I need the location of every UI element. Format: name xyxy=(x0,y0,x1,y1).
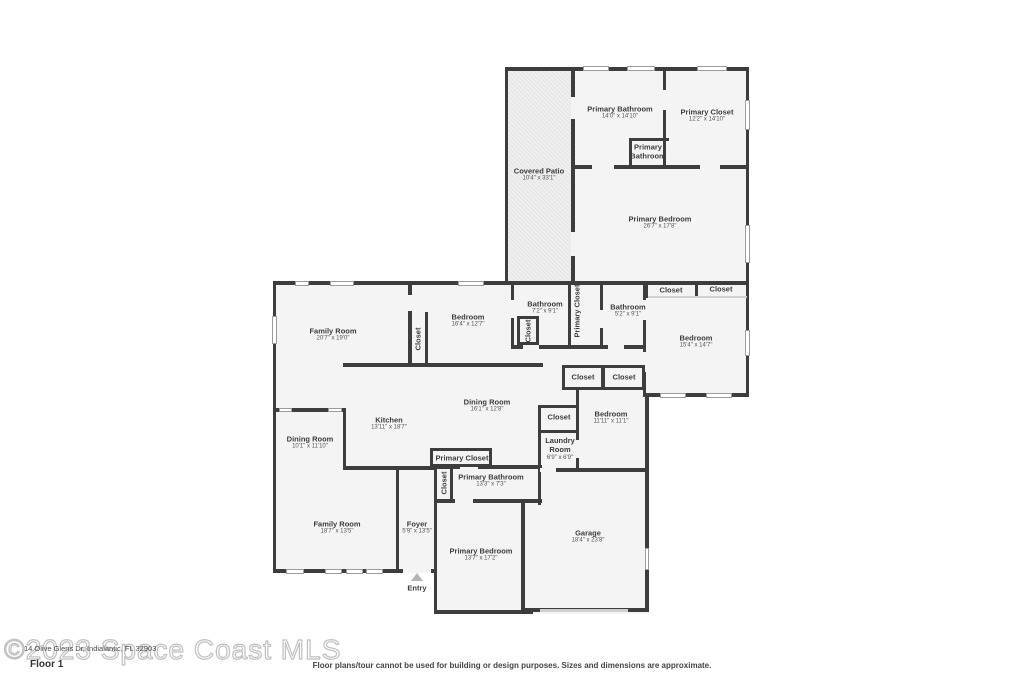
room-dimensions: 12'2" x 14'10" xyxy=(681,117,734,125)
room-floor xyxy=(273,397,436,572)
room-name: Dining Room xyxy=(287,435,334,444)
room-label-entry: Entry xyxy=(407,583,426,592)
window xyxy=(706,393,732,398)
window xyxy=(645,548,649,570)
window xyxy=(279,408,292,412)
room-dimensions: 13'7" x 17'2" xyxy=(450,556,513,564)
door-opening xyxy=(700,165,720,169)
entry-direction-icon xyxy=(411,573,423,581)
room-label-primary-closet-lower: Primary Closet xyxy=(436,453,489,462)
room-name: Bathroom xyxy=(527,300,562,309)
room-dimensions: 5'2" x 9'1" xyxy=(610,312,645,320)
room-name: Closet xyxy=(572,372,595,381)
floor-plan-page: Primary Bathroom14'0" x 14'10"Primary Cl… xyxy=(0,0,1024,683)
room-dimensions: 10'1" x 11'10" xyxy=(287,444,334,452)
door-opening xyxy=(592,165,614,169)
wall xyxy=(568,281,571,347)
room-dimensions: 6'9" x 6'9" xyxy=(540,455,580,463)
room-name: Closet xyxy=(613,372,636,381)
room-label-garage: Garage18'4" x 23'8" xyxy=(572,529,605,546)
room-name: Kitchen xyxy=(371,416,407,425)
room-name: Closet xyxy=(439,472,448,495)
room-label-primary-bathroom-lower: Primary Bathroom13'3" x 7'3" xyxy=(458,473,523,490)
room-label-bathroom-hall: Bathroom7'2" x 9'1" xyxy=(527,300,562,317)
door-opening xyxy=(540,468,556,472)
room-name: Bedroom xyxy=(594,410,629,419)
room-dimensions: 13'3" x 7'3" xyxy=(458,482,523,490)
wall xyxy=(343,466,437,470)
room-label-primary-bedroom-upper: Primary Bedroom26'7" x 17'8" xyxy=(629,215,692,232)
room-dimensions: 26'7" x 17'8" xyxy=(629,224,692,232)
window xyxy=(330,281,354,286)
room-name: Covered Patio xyxy=(514,167,564,176)
room-label-closet-bathroom-hall: Closet xyxy=(523,320,532,343)
room-dimensions: 13'11" x 18'7" xyxy=(371,425,407,433)
address-watermark: 14 Olive Glens Dr, Indialantic, FL 32903 xyxy=(24,644,156,653)
door-opening xyxy=(455,499,473,503)
window xyxy=(366,569,383,574)
room-name: Entry xyxy=(407,583,426,592)
window xyxy=(346,569,363,574)
wall xyxy=(450,467,453,502)
room-name: Closet xyxy=(413,328,422,351)
door-opening xyxy=(608,345,624,349)
window xyxy=(697,66,727,71)
room-label-closet-foyer: Closet xyxy=(439,472,448,495)
room-label-covered-patio: Covered Patio10'4" x 33'1" xyxy=(514,167,564,184)
window xyxy=(745,330,750,356)
wall xyxy=(396,467,399,571)
room-dimensions: 16'1" x 12'8" xyxy=(464,407,511,415)
room-label-closet-right-b: Closet xyxy=(710,284,733,293)
disclaimer-text: Floor plans/tour cannot be used for buil… xyxy=(0,661,1024,670)
room-name: Primary Closet xyxy=(681,108,734,117)
room-label-primary-closet-upper: Primary Closet12'2" x 14'10" xyxy=(681,108,734,125)
room-label-bathroom-right: Bathroom5'2" x 9'1" xyxy=(610,303,645,320)
room-label-kitchen: Kitchen13'11" x 18'7" xyxy=(371,416,407,433)
room-dimensions: 7'2" x 9'1" xyxy=(527,309,562,317)
room-name: Bedroom xyxy=(680,334,713,343)
room-dimensions: 5'9" x 13'5" xyxy=(402,529,432,537)
shelf-line xyxy=(540,609,628,612)
wall xyxy=(408,281,412,367)
wall xyxy=(343,408,346,468)
door-opening xyxy=(571,97,575,119)
room-name: Primary Closet xyxy=(572,285,581,338)
room-label-primary-bathroom-small: Primary Bathroom xyxy=(625,143,671,162)
room-name: Primary Closet xyxy=(436,453,489,462)
wall xyxy=(434,499,437,614)
room-dimensions: 18'4" x 23'8" xyxy=(572,538,605,546)
room-dimensions: 14'0" x 14'10" xyxy=(587,114,652,122)
room-label-closet-bedroom-mid: Closet xyxy=(413,328,422,351)
wall xyxy=(521,502,525,612)
window xyxy=(745,100,750,130)
room-dimensions: 20'7" x 19'0" xyxy=(309,336,356,344)
door-opening xyxy=(571,232,575,256)
room-dimensions: 10'4" x 33'1" xyxy=(514,176,564,184)
window xyxy=(328,408,342,412)
wall xyxy=(505,67,508,285)
window xyxy=(458,281,484,286)
door-opening xyxy=(600,310,603,328)
room-label-closet-laundry: Closet xyxy=(548,412,571,421)
window xyxy=(583,66,609,71)
room-name: Primary Bedroom xyxy=(629,215,692,224)
door-opening xyxy=(663,90,666,110)
room-label-closet-mid-b: Closet xyxy=(613,372,636,381)
door-opening xyxy=(523,345,539,349)
window xyxy=(627,66,655,71)
room-label-closet-mid-a: Closet xyxy=(572,372,595,381)
window xyxy=(295,281,309,286)
door-opening xyxy=(511,300,514,318)
window xyxy=(745,225,750,263)
room-dimensions: 16'4" x 12'7" xyxy=(452,322,485,330)
room-name: Closet xyxy=(660,285,683,294)
room-name: Closet xyxy=(548,412,571,421)
window xyxy=(660,393,686,398)
room-label-family-room-lower: Family Room18'7" x 13'5" xyxy=(313,520,360,537)
room-dimensions: 18'7" x 13'5" xyxy=(313,529,360,537)
wall xyxy=(434,499,542,503)
wall xyxy=(645,393,649,612)
room-name: Primary Bathroom xyxy=(458,473,523,482)
room-name: Bedroom xyxy=(452,313,485,322)
room-name: Garage xyxy=(572,529,605,538)
room-label-dining-room-left: Dining Room10'1" x 11'10" xyxy=(287,435,334,452)
wall xyxy=(538,405,578,408)
door-opening xyxy=(408,295,412,311)
wall xyxy=(343,363,543,367)
room-name: Laundry Room xyxy=(540,436,580,455)
wall xyxy=(425,312,428,367)
room-label-closet-right-a: Closet xyxy=(660,285,683,294)
room-name: Bathroom xyxy=(610,303,645,312)
room-name: Primary Bathroom xyxy=(587,105,652,114)
room-label-laundry-room: Laundry Room6'9" x 6'9" xyxy=(540,436,580,462)
room-label-bedroom-right: Bedroom15'4" x 14'7" xyxy=(680,334,713,351)
room-name: Closet xyxy=(710,284,733,293)
room-label-family-room-upper: Family Room20'7" x 19'0" xyxy=(309,327,356,344)
room-dimensions: 11'11" x 11'1" xyxy=(594,419,629,427)
window xyxy=(325,569,342,574)
window xyxy=(272,316,277,344)
room-name: Dining Room xyxy=(464,398,511,407)
room-label-bedroom-center: Bedroom11'11" x 11'1" xyxy=(594,410,629,427)
room-label-bedroom-mid: Bedroom16'4" x 12'7" xyxy=(452,313,485,330)
window xyxy=(286,569,304,574)
room-label-dining-room-main: Dining Room16'1" x 12'8" xyxy=(464,398,511,415)
room-label-primary-closet-hall: Primary Closet xyxy=(572,285,581,338)
room-name: Primary Bedroom xyxy=(450,547,513,556)
shelf-line xyxy=(648,296,747,298)
room-label-foyer: Foyer5'9" x 13'5" xyxy=(402,520,432,537)
room-dimensions: 15'4" x 14'7" xyxy=(680,343,713,351)
room-name: Foyer xyxy=(402,520,432,529)
room-name: Primary Bathroom xyxy=(625,143,671,162)
wall xyxy=(434,610,533,614)
room-name: Family Room xyxy=(309,327,356,336)
wall xyxy=(538,430,578,433)
room-label-primary-bathroom-upper: Primary Bathroom14'0" x 14'10" xyxy=(587,105,652,122)
room-name: Closet xyxy=(523,320,532,343)
room-label-primary-bedroom-lower: Primary Bedroom13'7" x 17'2" xyxy=(450,547,513,564)
wall xyxy=(629,138,669,141)
room-name: Family Room xyxy=(313,520,360,529)
